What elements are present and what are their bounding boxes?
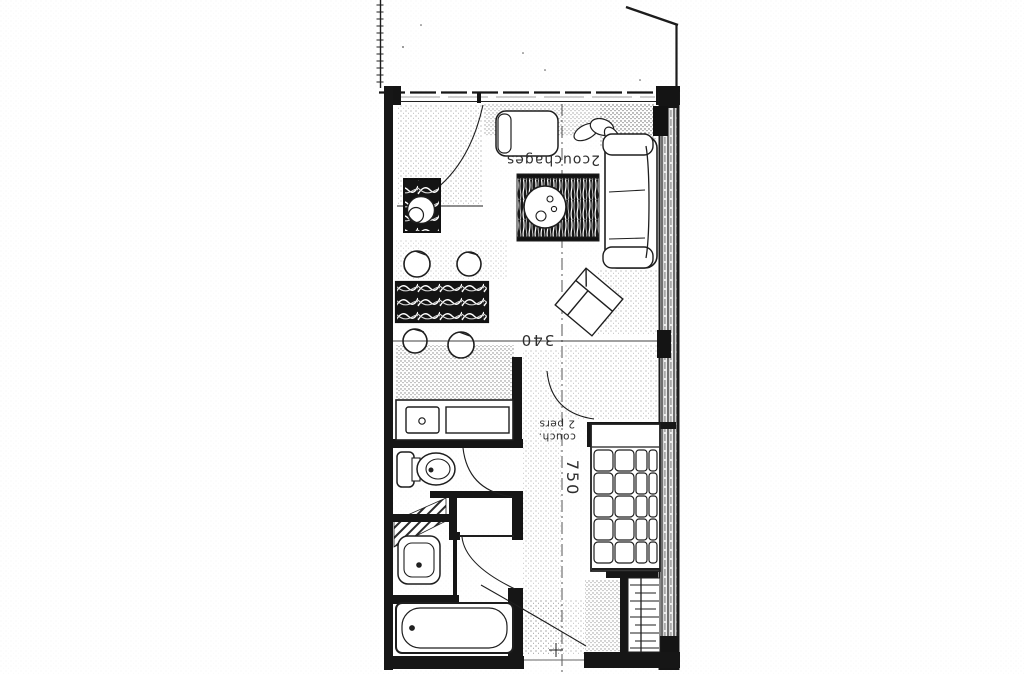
radiator bbox=[653, 106, 668, 136]
closet bbox=[457, 498, 512, 532]
wardrobe bbox=[628, 578, 660, 652]
label-bed-couchage-line2: 2 pers bbox=[528, 416, 586, 429]
coffee-table bbox=[524, 186, 566, 228]
label-dimension-340: 340 bbox=[510, 330, 564, 349]
label-bed-couchage: couch. 2 pers bbox=[528, 416, 586, 442]
bar-stool bbox=[448, 332, 474, 358]
label-dimension-750: 750 bbox=[550, 456, 582, 500]
exterior-wall-left bbox=[384, 86, 393, 670]
double-bed bbox=[591, 424, 660, 571]
bar-stool bbox=[404, 251, 430, 277]
kitchen bbox=[396, 400, 513, 440]
label-bed-couchage-line1: couch. bbox=[528, 429, 586, 442]
sink-drain bbox=[419, 418, 425, 424]
scanned-floor-plan-page: 2couchages 340 couch. 2 pers 750 bbox=[0, 0, 1024, 675]
bar-stool bbox=[457, 252, 481, 276]
window-door-hinge bbox=[477, 92, 481, 103]
bar-counter bbox=[396, 282, 488, 322]
label-living-sleeps: 2couchages bbox=[492, 150, 614, 168]
cooktop bbox=[446, 407, 509, 433]
